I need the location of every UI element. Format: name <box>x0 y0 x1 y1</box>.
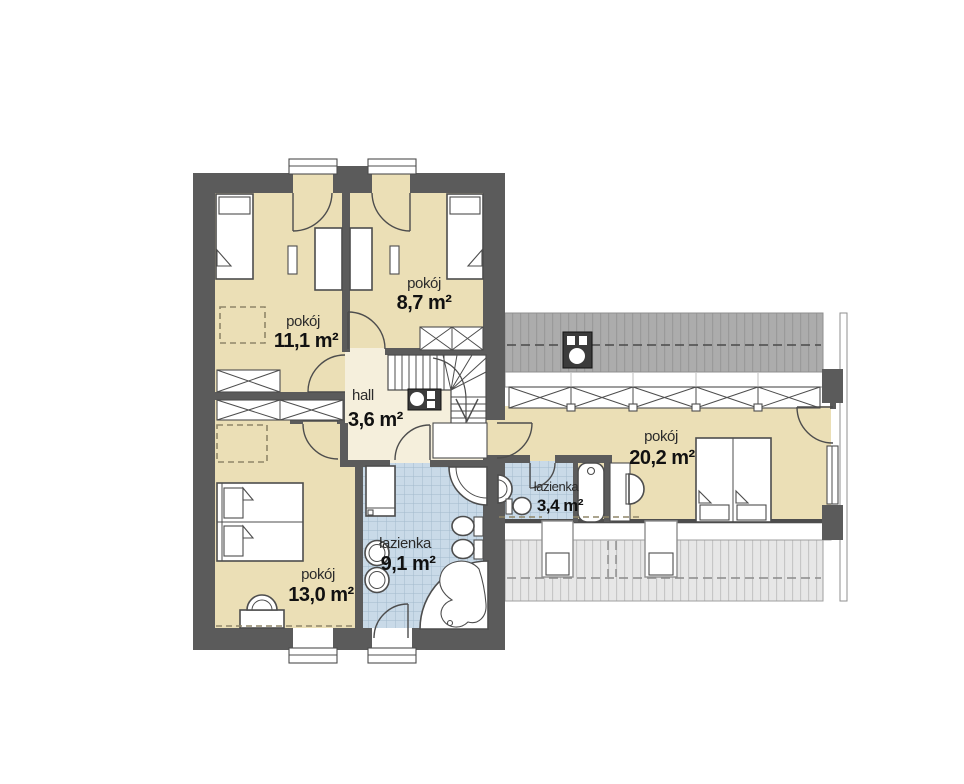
room-11-1-area: 11,1 m² <box>274 330 339 352</box>
bath-9-1-area: 9,1 m² <box>381 553 437 575</box>
room-8-7-area: 8,7 m² <box>397 292 453 314</box>
window-frame <box>289 648 337 663</box>
room-20-2-area: 20,2 m² <box>629 447 695 469</box>
floor-plan: pokój 11,1 m² pokój 8,7 m² hall 3,6 m² p… <box>0 0 964 784</box>
knee-wall-strip <box>505 372 823 387</box>
hall-area: 3,6 m² <box>348 409 404 431</box>
desk-icon <box>350 228 372 290</box>
toilet-icon <box>452 517 483 537</box>
wardrobe-icon <box>420 327 483 350</box>
room-8-7-label: pokój <box>407 275 441 292</box>
window-gap <box>293 628 333 650</box>
toilet-icon <box>452 540 483 560</box>
window-frame <box>368 648 416 663</box>
single-bed-icon <box>216 194 253 279</box>
double-bed-icon <box>217 483 303 561</box>
top-door-gap-left <box>293 173 333 193</box>
single-bed-icon <box>447 194 483 279</box>
knee-wardrobe-band <box>509 387 820 411</box>
gable-edge-line <box>840 313 847 601</box>
gable-window <box>827 446 838 504</box>
toilet-icon <box>506 498 531 515</box>
hall-label: hall <box>352 387 374 404</box>
balcony-door-frame <box>368 159 416 174</box>
dormer-window <box>645 521 677 577</box>
hall-cabinet <box>433 423 487 458</box>
top-door-gap-right <box>372 173 410 193</box>
dormer-window <box>542 521 573 577</box>
chair-icon <box>390 246 399 274</box>
floor-plan-drawing: pokój 11,1 m² pokój 8,7 m² hall 3,6 m² p… <box>0 0 964 784</box>
bath-3-4-label: łazienka <box>534 479 580 494</box>
wardrobe-icon <box>217 370 280 392</box>
desk-icon <box>315 228 342 290</box>
balcony-door-frame <box>289 159 337 174</box>
room-13-0-label: pokój <box>301 566 335 583</box>
bath-3-4-area: 3,4 m² <box>537 496 584 515</box>
boiler-icon <box>408 389 441 410</box>
bath-9-1-label: łazienka <box>379 535 432 552</box>
washer-icon <box>366 466 395 516</box>
double-bed-icon <box>696 438 771 522</box>
roof-slope-upper <box>505 313 823 372</box>
room-20-2-label: pokój <box>644 428 678 445</box>
room-11-1-label: pokój <box>286 313 320 330</box>
chair-icon <box>288 246 297 274</box>
chimney-icon <box>563 332 592 368</box>
window-gap <box>372 628 412 650</box>
wardrobe-icon <box>217 400 343 420</box>
room-13-0-area: 13,0 m² <box>288 584 354 606</box>
